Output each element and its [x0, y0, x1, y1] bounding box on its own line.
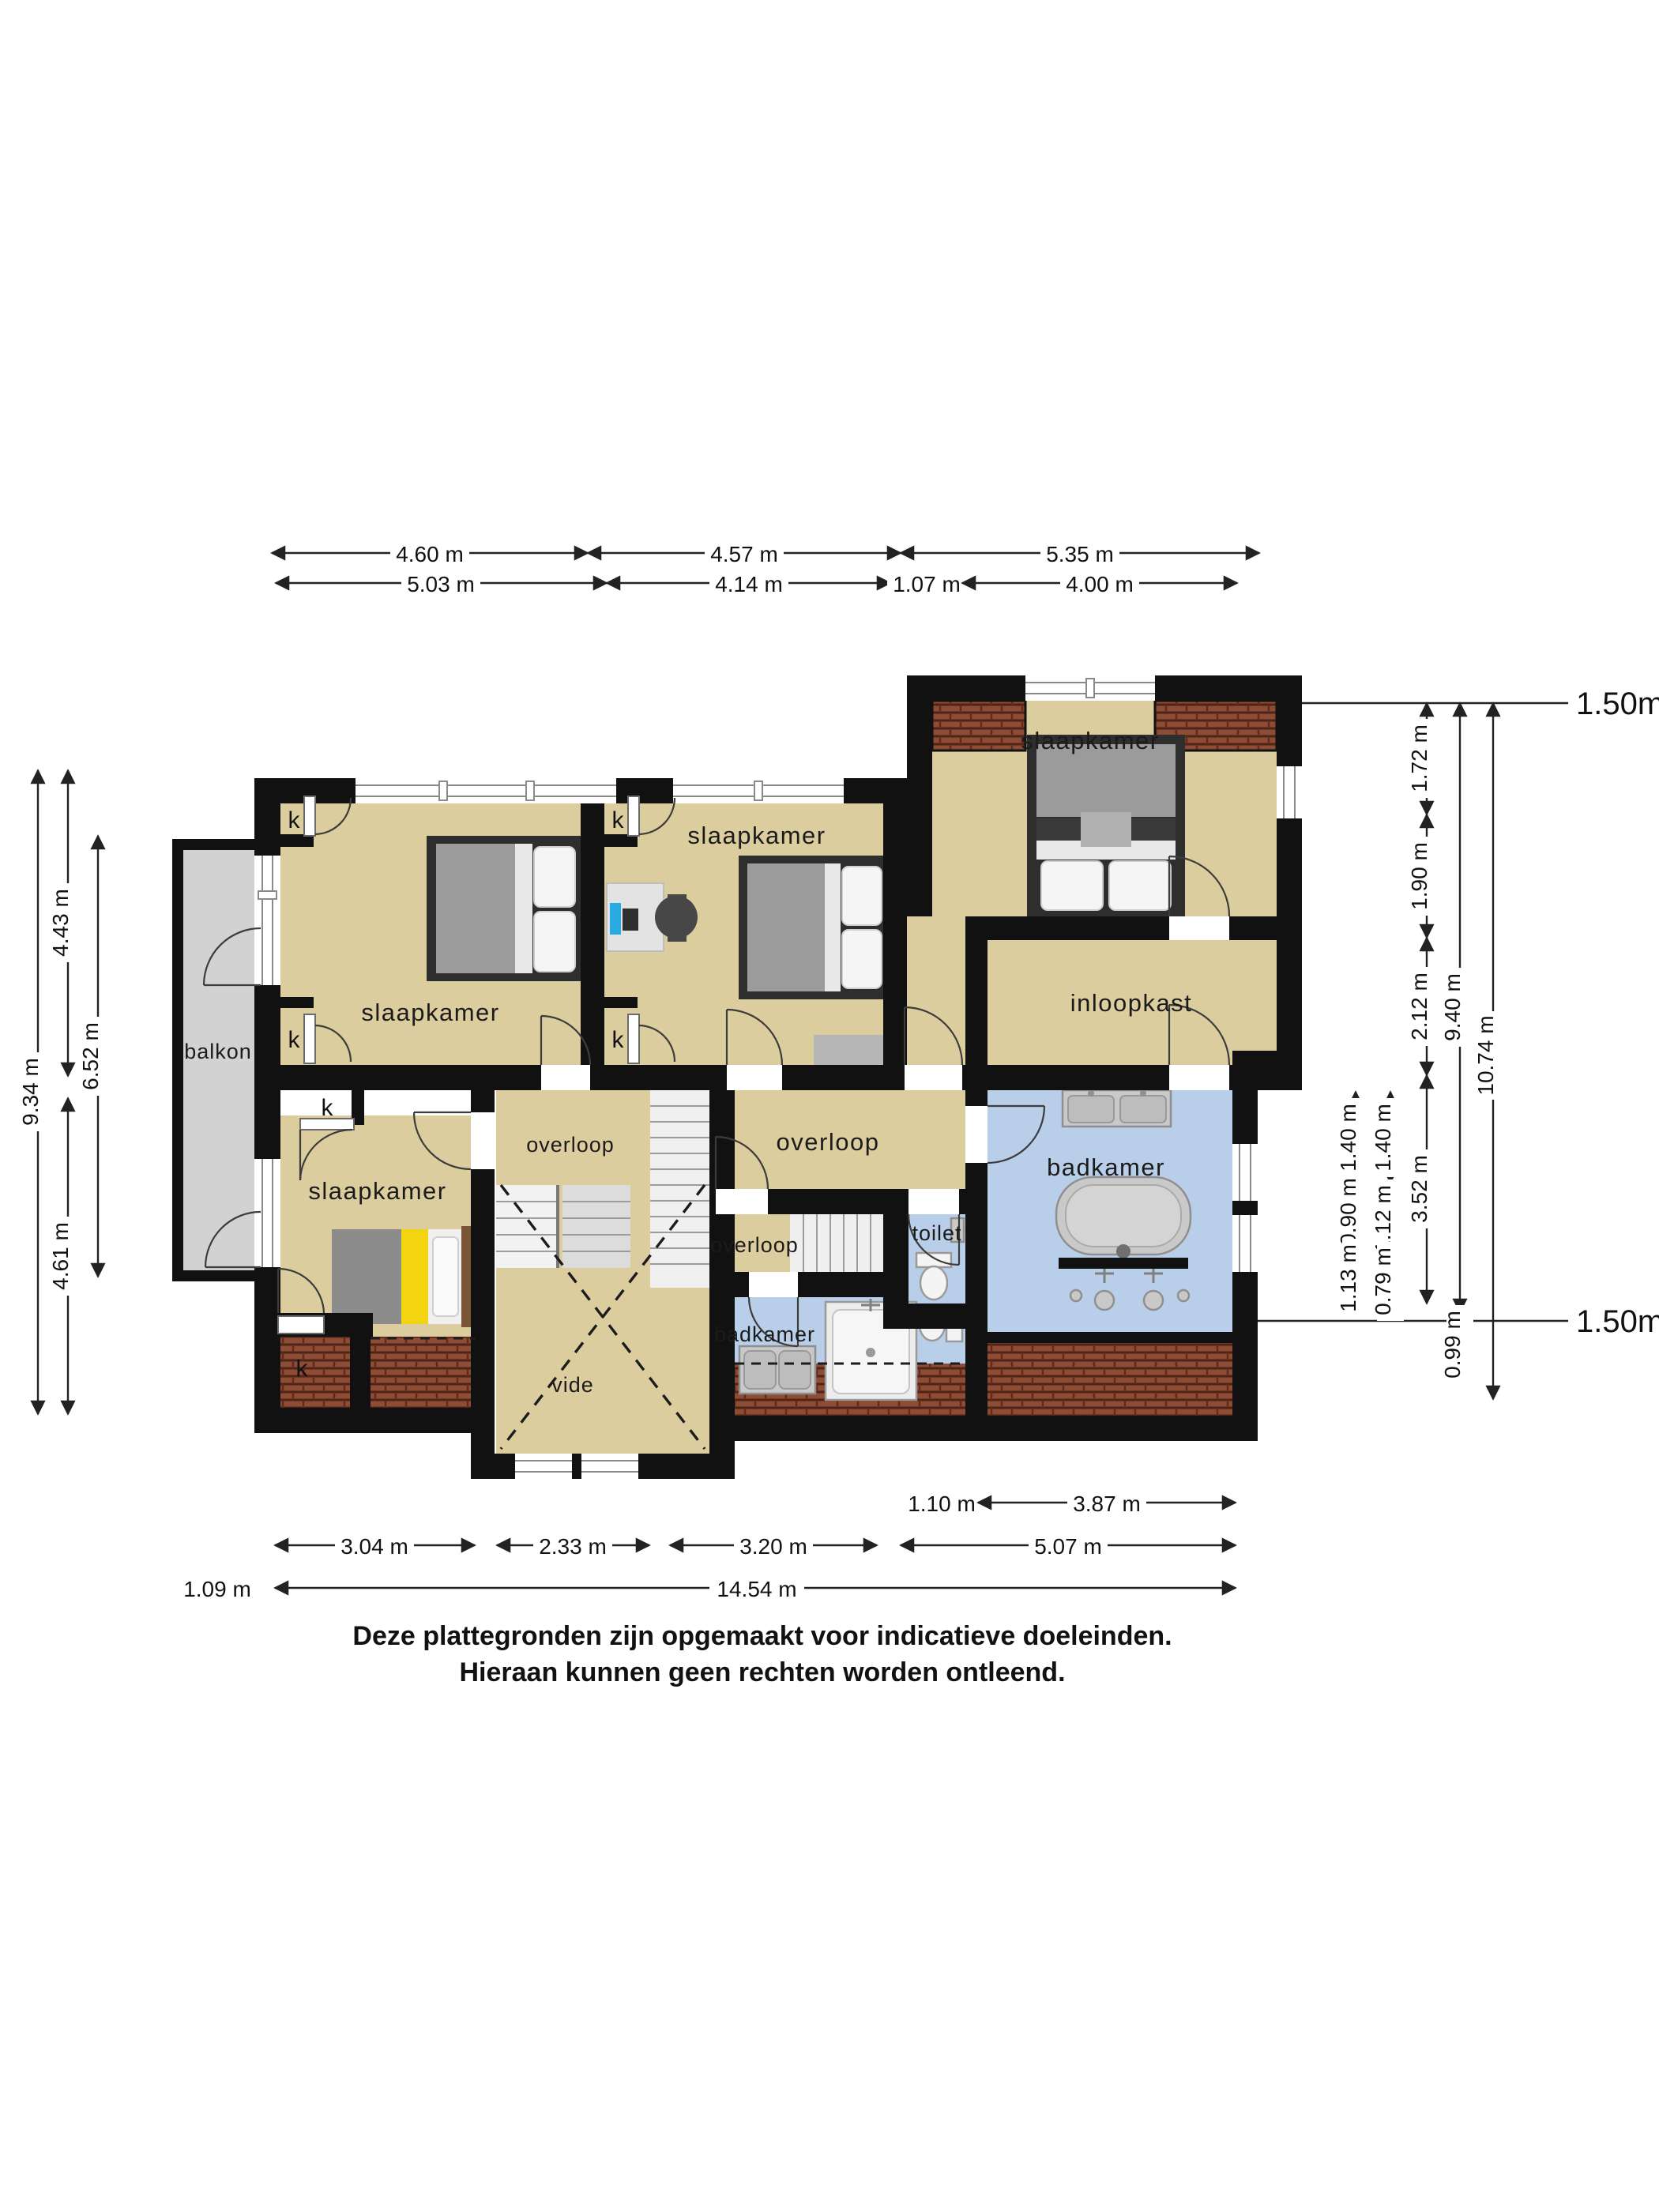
label-balcony: balkon — [184, 1040, 252, 1063]
roof-strip-bottomleft — [280, 1337, 476, 1408]
corridor-floor — [907, 916, 965, 1065]
label-bathroom-small: badkamer — [714, 1322, 815, 1346]
roof-strip-bottomright — [987, 1343, 1232, 1416]
label-landing-small: overloop — [710, 1233, 799, 1257]
label-bedroom-topright: slaapkamer — [1021, 727, 1159, 754]
footer: Deze plattegronden zijn opgemaakt voor i… — [352, 1621, 1172, 1687]
dim-right-d1: 9.40 m — [1440, 973, 1465, 1041]
stair-flight-right — [562, 1185, 630, 1268]
footer-line-1: Deze plattegronden zijn opgemaakt voor i… — [352, 1621, 1172, 1651]
dim-bottom3-1: 1.09 m — [183, 1577, 251, 1601]
double-bed-topright — [1027, 735, 1185, 920]
dim-top1-2: 4.57 m — [710, 542, 778, 566]
dim-bottom2-2: 2.33 m — [539, 1534, 607, 1559]
single-bed-bottomleft — [332, 1226, 471, 1327]
label-150-top: 1.50m lijn — [1576, 687, 1659, 721]
window-void-bottom-2 — [581, 1454, 638, 1479]
label-bedroom-topleft: slaapkamer — [361, 999, 499, 1026]
label-closet-1: k — [288, 807, 301, 833]
dim-bottom2-4: 5.07 m — [1034, 1534, 1102, 1559]
dimensions-left: 9.34 m 4.43 m 4.61 m 6.52 m — [18, 770, 111, 1414]
double-bed-topleft — [427, 836, 581, 981]
dim-bottom2-1: 3.04 m — [340, 1534, 408, 1559]
label-landing-main: overloop — [777, 1128, 880, 1156]
dim-bottom1-2: 3.87 m — [1073, 1492, 1141, 1516]
label-closet-4: k — [612, 1027, 625, 1053]
floorplan-page: slaapkamer slaapkamer slaapkamer slaapka… — [0, 0, 1659, 2212]
dim-top1-3: 5.35 m — [1046, 542, 1114, 566]
double-bed-middle — [739, 856, 889, 999]
dim-bottom2-3: 3.20 m — [739, 1534, 807, 1559]
footer-line-2: Hieraan kunnen geen rechten worden ontle… — [459, 1657, 1065, 1687]
label-walkin-closet: inloopkast — [1070, 989, 1193, 1017]
stair-flight-left — [496, 1185, 558, 1268]
label-bedroom-middle: slaapkamer — [687, 822, 826, 849]
dim-right-c1: 1.72 m — [1407, 724, 1431, 792]
dim-right-c2: 1.90 m — [1407, 842, 1431, 910]
floorplan-drawing: slaapkamer slaapkamer slaapkamer slaapka… — [0, 0, 1659, 2212]
dim-top2-2: 4.14 m — [715, 572, 783, 596]
dim-right-e1: 10.74 m — [1473, 1015, 1498, 1095]
dim-left-3: 4.61 m — [48, 1222, 73, 1290]
window-bathroom-right-1 — [1232, 1144, 1258, 1201]
label-closet-5: k — [322, 1095, 334, 1121]
window-balcony-bedroom-bottomleft — [254, 1159, 280, 1267]
label-closet-roof: k — [296, 1356, 309, 1382]
dim-right-b3: 0.79 m — [1371, 1247, 1395, 1315]
label-void: vide — [551, 1373, 594, 1397]
window-void-bottom-1 — [515, 1454, 572, 1479]
window-bedroom-topright — [1025, 675, 1155, 701]
dim-right-c4: 3.52 m — [1407, 1155, 1431, 1223]
roof-patch-topleft — [932, 701, 1025, 750]
window-bedroom-middle — [673, 778, 844, 803]
dimensions-right: 1.40 m 0.90 m 1.13 m 1.40 m 1.12 m 0.79 … — [1336, 703, 1507, 1399]
dim-top2-1: 5.03 m — [407, 572, 475, 596]
label-bedroom-bottomleft: slaapkamer — [308, 1177, 446, 1205]
label-landing-top: overloop — [526, 1133, 615, 1157]
dimensions-top: 4.60 m 4.57 m 5.35 m 5.03 m 4.14 m 1.07 … — [272, 540, 1259, 596]
window-balcony-bedroom-topleft — [254, 856, 280, 985]
double-sink-large — [1063, 1090, 1171, 1127]
dim-left-1: 9.34 m — [18, 1058, 43, 1126]
dim-right-d2: 0.99 m — [1440, 1311, 1465, 1379]
dim-bottom3-2: 14.54 m — [717, 1577, 796, 1601]
dim-right-c3: 2.12 m — [1407, 972, 1431, 1040]
dim-right-b1: 1.40 m — [1371, 1104, 1395, 1172]
dim-bottom1-1: 1.10 m — [908, 1492, 976, 1516]
window-bedroom-topleft — [355, 778, 616, 803]
label-toilet: toilet — [912, 1221, 961, 1245]
dim-right-a2: 0.90 m — [1336, 1178, 1360, 1246]
floor-mat — [814, 1035, 886, 1065]
dim-top1-1: 4.60 m — [396, 542, 464, 566]
dim-left-2: 4.43 m — [48, 889, 73, 957]
window-bathroom-right-2 — [1232, 1215, 1258, 1272]
dim-left-4: 6.52 m — [78, 1022, 103, 1090]
dim-right-a3: 1.13 m — [1336, 1244, 1360, 1312]
dim-right-a1: 1.40 m — [1336, 1104, 1360, 1172]
label-150-bottom: 1.50m lijn — [1576, 1304, 1659, 1339]
label-bathroom-large: badkamer — [1047, 1153, 1165, 1181]
label-closet-2: k — [288, 1027, 301, 1053]
label-closet-3: k — [612, 807, 625, 833]
double-sink-small — [739, 1346, 815, 1394]
dimensions-bottom: 1.10 m 3.87 m 3.04 m 2.33 m 3.20 m 5.07 … — [178, 1489, 1236, 1601]
dim-top2-4: 4.00 m — [1066, 572, 1134, 596]
dim-top2-3: 1.07 m — [893, 572, 961, 596]
window-topright-sidewall — [1277, 766, 1302, 818]
